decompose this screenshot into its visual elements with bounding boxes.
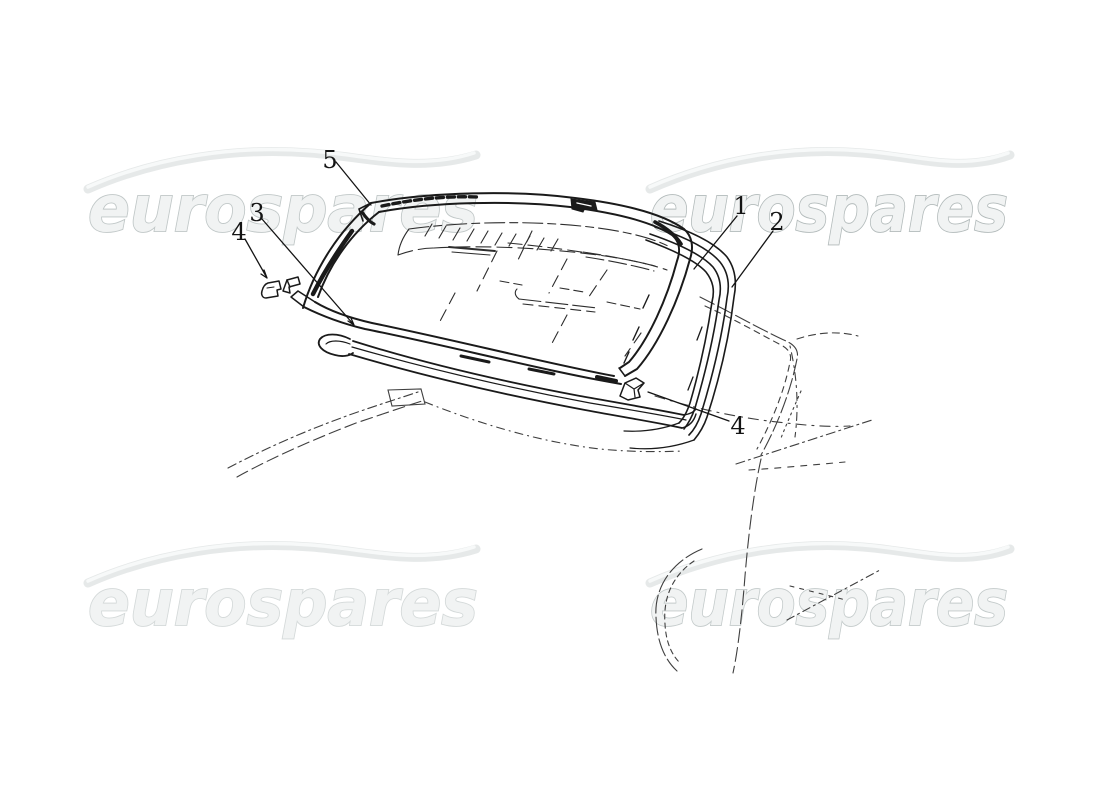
seal-bottom-joint-marks (461, 356, 554, 374)
molding-left-hook (319, 335, 353, 357)
molding-hook-inner (326, 341, 350, 344)
rear-deck-line (655, 396, 850, 426)
watermark-text: eurospares (88, 173, 478, 247)
leader-line-4-bottom (648, 392, 729, 421)
watermark-text: eurospares (650, 567, 1008, 641)
watermark-text: eurospares (88, 567, 478, 641)
quarter-window-outer (700, 297, 798, 455)
seal-right-end-cut (619, 368, 625, 376)
seal-bottom-upper-edge (315, 302, 614, 376)
glass-bottom-edge (624, 423, 679, 431)
deck-diagonal-right (797, 333, 858, 339)
watermark-bottom-left: eurospares (88, 544, 478, 642)
watermark-bottom-right: eurospares (650, 544, 1010, 642)
roof-rail-line-2 (237, 401, 422, 477)
glass-second-sketch-line (398, 247, 667, 270)
fender-line-2 (749, 462, 845, 470)
glass-edge-outer (650, 234, 720, 429)
watermark-text: eurospares (650, 173, 1008, 247)
watermark-top-right: eurospares (650, 150, 1010, 248)
callout-number-3: 3 (249, 199, 264, 227)
callout-number-4-left: 4 (231, 218, 246, 246)
roof-rail-line (228, 392, 418, 468)
glass-diagonal-hatching (438, 231, 641, 356)
left-clip-crease (287, 280, 290, 287)
fender-belt-line (736, 420, 872, 464)
bottom-clip-body (620, 378, 644, 400)
trim-edge-inner (655, 227, 728, 435)
trim-tick-marks (688, 327, 702, 390)
bottom-clip-creases (625, 383, 644, 397)
parts-diagram-page: eurospares eurospares eurospares eurospa… (0, 0, 1100, 800)
rail-fitting-box (388, 389, 425, 406)
c-pillar-line (790, 346, 797, 437)
c-pillar-line-2 (781, 391, 801, 438)
molding-bottom-edge (349, 354, 682, 428)
callout-number-5: 5 (322, 146, 337, 174)
rear-screen-seals-diagram: eurospares eurospares eurospares eurospa… (0, 0, 1100, 800)
molding-right-end (682, 409, 696, 428)
glass-reflection-streaks (449, 243, 655, 312)
belt-line-left (425, 402, 683, 452)
left-clip-inner (267, 287, 274, 288)
callout-number-4-bottom: 4 (730, 412, 745, 440)
left-clip-hook (262, 281, 281, 298)
trim-bottom-edge (630, 440, 694, 449)
callout-number-2: 2 (769, 208, 784, 236)
callout-number-1: 1 (733, 192, 748, 220)
